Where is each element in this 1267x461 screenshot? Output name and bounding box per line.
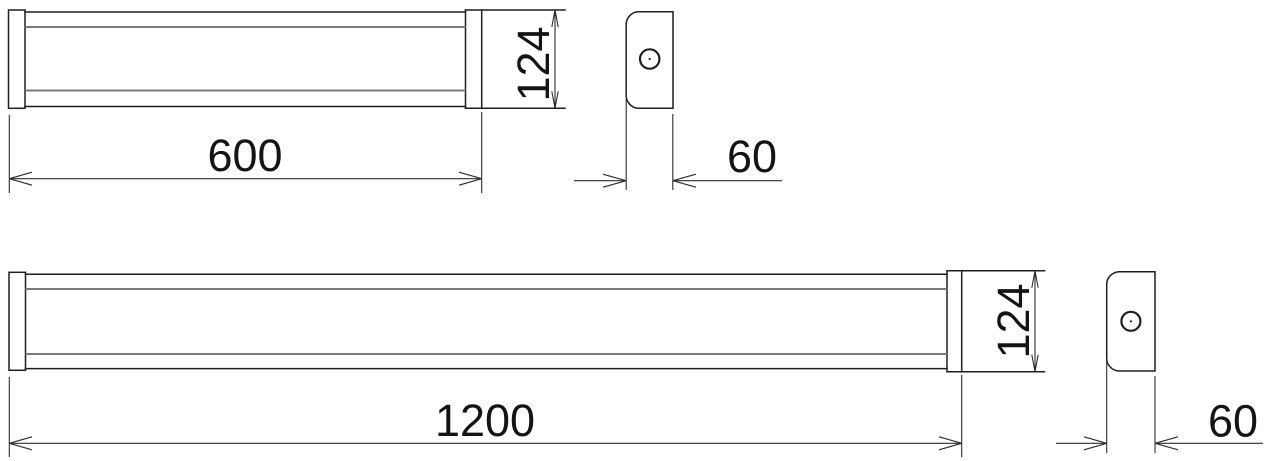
hole-center-mark bbox=[649, 58, 651, 60]
front-view-600 bbox=[9, 10, 566, 108]
end-cap-left-600 bbox=[9, 10, 26, 108]
side-view-1200 bbox=[1107, 272, 1155, 371]
dimension-label-height-600: 124 bbox=[508, 26, 559, 101]
front-view-1200 bbox=[9, 271, 1045, 372]
side-view-600 bbox=[626, 12, 673, 109]
dimension-label-width-600-side: 60 bbox=[727, 131, 777, 182]
dimension-label-height-1200: 124 bbox=[988, 283, 1039, 358]
front-view-1200-diffuser-lines bbox=[26, 289, 948, 354]
hole-center-mark bbox=[1130, 320, 1132, 322]
dimension-label-length-1200: 1200 bbox=[435, 395, 535, 446]
dimension-label-width-1200-side: 60 bbox=[1208, 396, 1258, 447]
front-view-600-diffuser-lines bbox=[25, 27, 466, 91]
dimension-label-length-600: 600 bbox=[207, 130, 282, 181]
drawing-canvas: 124 600 60 1 bbox=[0, 0, 1267, 461]
technical-drawing: 124 600 60 1 bbox=[0, 0, 1267, 461]
end-cap-left-1200 bbox=[9, 272, 26, 370]
